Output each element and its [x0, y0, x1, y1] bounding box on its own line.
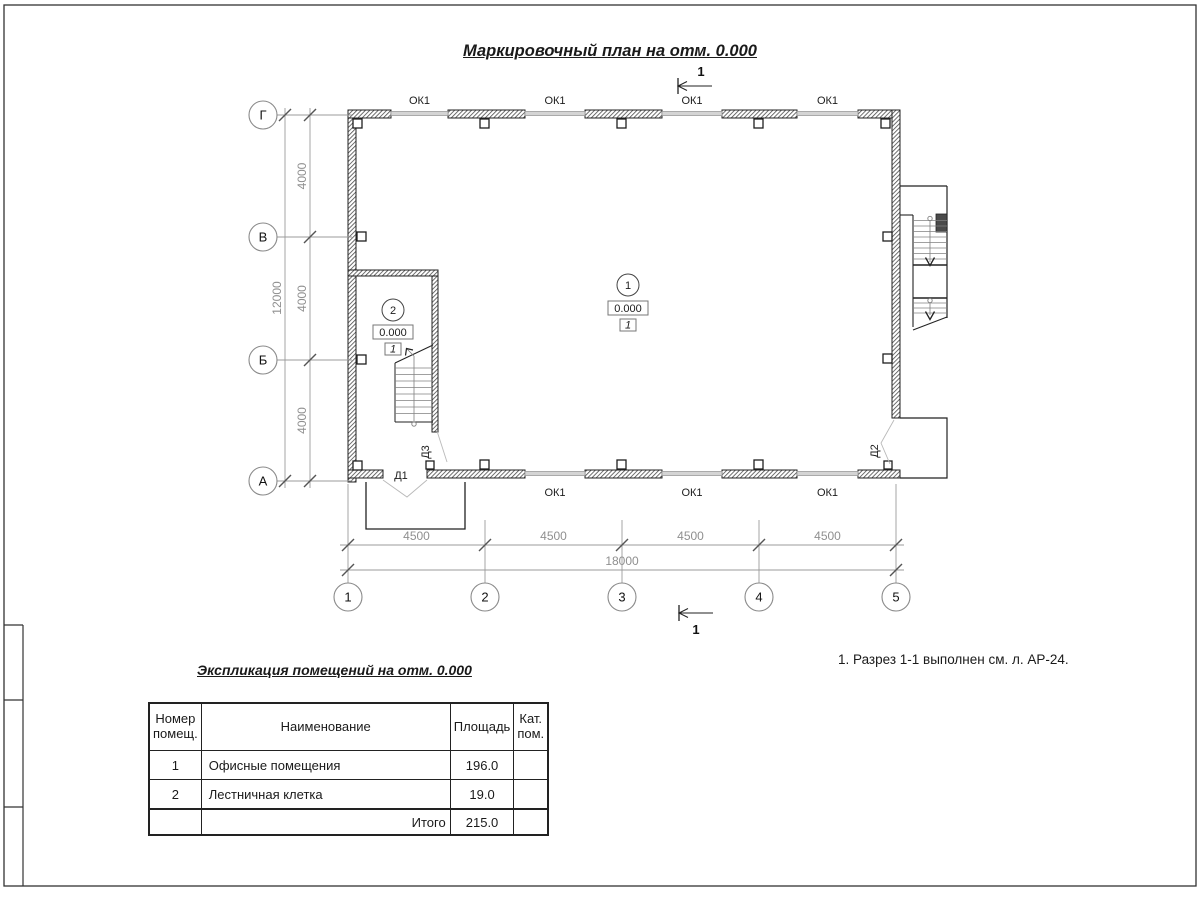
explication-table-wrap: Номер помещ. Наименование Площадь Кат. п… [148, 702, 549, 836]
axis-label-5: 5 [892, 590, 899, 605]
room-2-floor-type: 1 [390, 344, 396, 356]
explication-total-row: Итого 215.0 [149, 809, 548, 835]
window-label-ok1-bottom-1: ОК1 [544, 487, 565, 499]
drawing-sheet: { "title": "Маркировочный план на отм. 0… [0, 0, 1200, 900]
window-label-ok1-top-2: ОК1 [544, 95, 565, 107]
section-mark-top: 1 [678, 64, 712, 94]
entrance-porch-right [900, 418, 947, 478]
window-label-ok1-top-3: ОК1 [681, 95, 702, 107]
room-1-number: 1 [625, 280, 631, 292]
axis-label-g: Г [259, 108, 266, 123]
section-number-top: 1 [697, 64, 704, 79]
dim-4500-3: 4500 [677, 529, 704, 543]
total-empty-cell [149, 809, 201, 835]
interior-stair [395, 345, 433, 426]
room-cat-cell [514, 751, 548, 780]
dim-4000-1: 4000 [295, 162, 309, 189]
axis-label-3: 3 [618, 590, 625, 605]
door-label-d1: Д1 [394, 470, 408, 482]
axis-label-1: 1 [344, 590, 351, 605]
total-cat-cell [514, 809, 548, 835]
axis-label-4: 4 [755, 590, 762, 605]
door-label-d2: Д2 [869, 444, 881, 458]
page-title: Маркировочный план на отм. 0.000 [400, 42, 820, 61]
room-name-cell: Офисные помещения [201, 751, 450, 780]
window-label-ok1-bottom-2: ОК1 [681, 487, 702, 499]
horizontal-dimensions: 4500 4500 4500 4500 18000 1 2 3 4 5 [334, 484, 910, 611]
axis-label-a: А [259, 474, 268, 489]
room-area-cell: 196.0 [450, 751, 514, 780]
window-labels: ОК1 ОК1 ОК1 ОК1 ОК1 ОК1 ОК1 [409, 95, 838, 499]
total-area-cell: 215.0 [450, 809, 514, 835]
section-number-bottom: 1 [692, 622, 699, 637]
header-name: Наименование [201, 703, 450, 751]
door-label-d3: Д3 [420, 445, 432, 459]
header-area: Площадь [450, 703, 514, 751]
dim-4500-1: 4500 [403, 529, 430, 543]
window-label-ok1-top-1: ОК1 [409, 95, 430, 107]
room-area-cell: 19.0 [450, 780, 514, 810]
dim-12000: 12000 [270, 281, 284, 315]
header-category: Кат. пом. [514, 703, 548, 751]
explication-table: Номер помещ. Наименование Площадь Кат. п… [148, 702, 549, 836]
door-swings [383, 420, 894, 497]
axis-label-2: 2 [481, 590, 488, 605]
exterior-stair [900, 186, 947, 330]
window-label-ok1-top-4: ОК1 [817, 95, 838, 107]
dim-4500-2: 4500 [540, 529, 567, 543]
dim-18000: 18000 [605, 554, 639, 568]
vertical-dimensions: 4000 4000 4000 12000 [270, 108, 316, 488]
explication-header-row: Номер помещ. Наименование Площадь Кат. п… [149, 703, 548, 751]
room-2-number: 2 [390, 305, 396, 317]
total-label-cell: Итого [201, 809, 450, 835]
room-marker-1: 1 0.000 1 [608, 274, 648, 332]
room-2-elevation: 0.000 [379, 327, 407, 339]
dim-4000-3: 4000 [295, 407, 309, 434]
room-1-elevation: 0.000 [614, 303, 642, 315]
entrance-porch-left [366, 482, 465, 529]
explication-row-1: 1 Офисные помещения 196.0 [149, 751, 548, 780]
window-label-ok1-bottom-3: ОК1 [817, 487, 838, 499]
room-cat-cell [514, 780, 548, 810]
header-room-number: Номер помещ. [149, 703, 201, 751]
section-note: 1. Разрез 1-1 выполнен см. л. АР-24. [838, 652, 1069, 667]
dim-4000-2: 4000 [295, 285, 309, 312]
room-num-cell: 1 [149, 751, 201, 780]
room-1-floor-type: 1 [625, 320, 631, 332]
room-num-cell: 2 [149, 780, 201, 810]
dim-4500-4: 4500 [814, 529, 841, 543]
explication-row-2: 2 Лестничная клетка 19.0 [149, 780, 548, 810]
explication-title: Экспликация помещений на отм. 0.000 [197, 662, 472, 678]
exterior-walls [348, 110, 900, 482]
section-mark-bottom: 1 [679, 605, 713, 637]
axis-label-b: Б [259, 353, 268, 368]
axis-label-v: В [259, 230, 268, 245]
room-name-cell: Лестничная клетка [201, 780, 450, 810]
room-marker-2: 2 0.000 1 [373, 299, 413, 356]
